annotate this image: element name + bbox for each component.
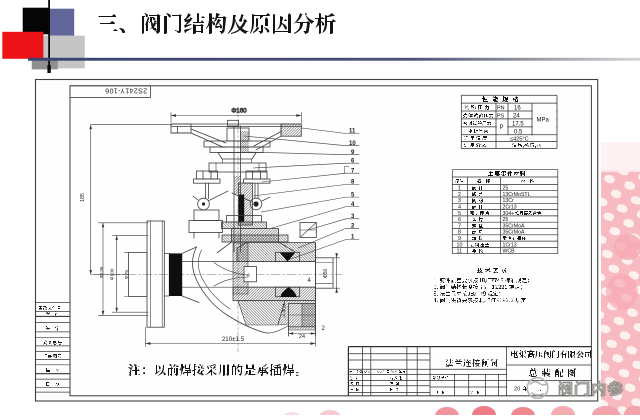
svg-text:2: 2 xyxy=(458,192,461,198)
svg-text:6: 6 xyxy=(458,217,461,223)
svg-text:4-Φ24: 4-Φ24 xyxy=(282,303,288,317)
svg-text:210±1.5: 210±1.5 xyxy=(222,336,245,343)
svg-text:35CrMoA: 35CrMoA xyxy=(503,223,525,229)
svg-text:WCB: WCB xyxy=(503,249,516,255)
svg-text:Φ50: Φ50 xyxy=(323,269,329,279)
svg-text:3: 3 xyxy=(458,198,461,204)
svg-text:d: d xyxy=(247,273,250,278)
svg-text:13Cr: 13Cr xyxy=(503,198,515,204)
svg-text:8: 8 xyxy=(458,230,461,236)
svg-text:25: 25 xyxy=(503,217,509,223)
svg-text:24: 24 xyxy=(513,114,520,120)
svg-text:Φ135: Φ135 xyxy=(99,266,105,278)
svg-text:0.5: 0.5 xyxy=(514,129,523,135)
svg-text:P: P xyxy=(500,125,504,131)
svg-text:7: 7 xyxy=(458,223,461,229)
svg-text:25: 25 xyxy=(503,186,509,192)
svg-text:5: 5 xyxy=(458,211,461,217)
svg-text:2S241Y-106: 2S241Y-106 xyxy=(105,86,147,93)
svg-text:PN: PN xyxy=(497,105,505,111)
svg-text:Φ100: Φ100 xyxy=(109,268,115,280)
svg-text:185: 185 xyxy=(80,193,86,202)
svg-text:10: 10 xyxy=(457,242,463,248)
svg-text:PS: PS xyxy=(497,113,505,119)
svg-text:20: 20 xyxy=(514,387,520,393)
svg-text:1Cr13: 1Cr13 xyxy=(503,242,517,248)
svg-text:13CrMoSTL: 13CrMoSTL xyxy=(503,192,531,198)
svg-text:Φ160: Φ160 xyxy=(231,108,247,115)
svg-text:11: 11 xyxy=(457,249,463,255)
svg-text:24: 24 xyxy=(299,334,305,340)
svg-text:2Cr13: 2Cr13 xyxy=(503,205,517,211)
svg-text:4: 4 xyxy=(458,205,461,211)
svg-text:Φ75: Φ75 xyxy=(124,270,130,279)
svg-text:≤425°C: ≤425°C xyxy=(510,136,529,142)
svg-text:10: 10 xyxy=(349,141,356,147)
svg-text:11: 11 xyxy=(349,129,356,135)
svg-text:MPa: MPa xyxy=(537,118,550,124)
svg-text:304+: 304+ xyxy=(503,211,515,217)
svg-text:1: 1 xyxy=(458,186,461,192)
svg-text:16: 16 xyxy=(514,106,521,112)
svg-text:17.5: 17.5 xyxy=(512,121,524,127)
svg-text:35CrMoA: 35CrMoA xyxy=(503,230,525,236)
svg-text:9: 9 xyxy=(458,236,461,242)
